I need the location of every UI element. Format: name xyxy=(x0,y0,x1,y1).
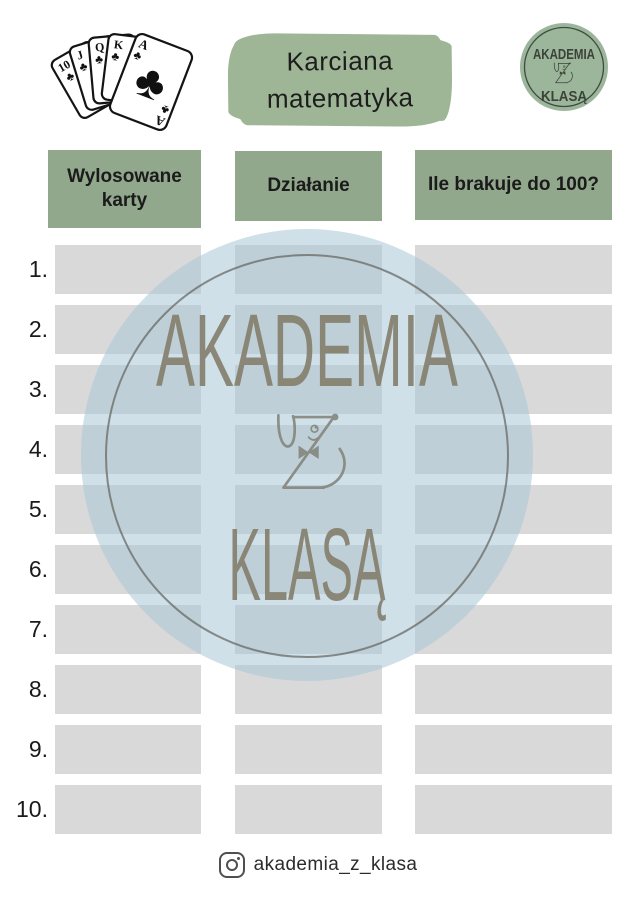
column-header-wylosowane-karty: Wylosowane karty xyxy=(48,150,201,228)
answer-cell-dzialanie[interactable] xyxy=(235,605,382,654)
table-row: 1. xyxy=(0,245,612,294)
answer-cell-karty[interactable] xyxy=(55,725,201,774)
page-title-line-2: matematyka xyxy=(267,79,414,118)
footer: akademia_z_klasa xyxy=(0,852,636,878)
playing-cards-illustration: 10 ♣ J ♣ Q ♣ K ♣ A ♣ ♣ A ♣ xyxy=(48,18,206,140)
table-row: 6. xyxy=(0,545,612,594)
answer-cell-brakuje[interactable] xyxy=(415,785,612,834)
answer-cell-dzialanie[interactable] xyxy=(235,425,382,474)
page-title-line-1: Karciana xyxy=(286,42,393,80)
answer-cell-dzialanie[interactable] xyxy=(235,725,382,774)
answer-cell-brakuje[interactable] xyxy=(415,425,612,474)
row-number: 6. xyxy=(0,545,55,594)
instagram-flash-dot xyxy=(237,857,240,860)
row-number: 5. xyxy=(0,485,55,534)
answer-cell-dzialanie[interactable] xyxy=(235,485,382,534)
answer-cell-dzialanie[interactable] xyxy=(235,305,382,354)
table-row: 10. xyxy=(0,785,612,834)
answer-cell-dzialanie[interactable] xyxy=(235,245,382,294)
answer-cell-dzialanie[interactable] xyxy=(235,665,382,714)
logo-text-akademia: AKADEMIA xyxy=(533,46,595,63)
table-row: 3. xyxy=(0,365,612,414)
answer-cell-karty[interactable] xyxy=(55,245,201,294)
answer-cell-karty[interactable] xyxy=(55,785,201,834)
answer-cell-brakuje[interactable] xyxy=(415,545,612,594)
worksheet-page: 10 ♣ J ♣ Q ♣ K ♣ A ♣ ♣ A ♣ xyxy=(0,0,636,900)
answer-cell-brakuje[interactable] xyxy=(415,725,612,774)
row-number: 3. xyxy=(0,365,55,414)
logo-text-klasa: KLASĄ xyxy=(541,88,587,105)
worksheet-rows: 1. 2. 3. 4. 5. xyxy=(0,245,612,834)
instagram-lens xyxy=(226,859,238,871)
column-header-ile-brakuje: Ile brakuje do 100? xyxy=(415,150,612,220)
row-number: 2. xyxy=(0,305,55,354)
answer-cell-dzialanie[interactable] xyxy=(235,785,382,834)
row-number: 7. xyxy=(0,605,55,654)
table-row: 4. xyxy=(0,425,612,474)
logo-circle xyxy=(520,23,608,111)
answer-cell-karty[interactable] xyxy=(55,665,201,714)
table-row: 8. xyxy=(0,665,612,714)
column-header-dzialanie: Działanie xyxy=(235,151,382,221)
dog-z-icon xyxy=(554,62,572,82)
answer-cell-brakuje[interactable] xyxy=(415,365,612,414)
table-row: 9. xyxy=(0,725,612,774)
title-banner: Karciana matematyka xyxy=(228,37,453,123)
row-number: 4. xyxy=(0,425,55,474)
row-number: 9. xyxy=(0,725,55,774)
row-number: 8. xyxy=(0,665,55,714)
instagram-icon xyxy=(219,852,245,878)
answer-cell-brakuje[interactable] xyxy=(415,245,612,294)
answer-cell-karty[interactable] xyxy=(55,305,201,354)
table-row: 2. xyxy=(0,305,612,354)
logo-ring xyxy=(525,28,604,107)
instagram-handle: akademia_z_klasa xyxy=(254,854,418,876)
answer-cell-brakuje[interactable] xyxy=(415,485,612,534)
row-number: 10. xyxy=(0,785,55,834)
answer-cell-karty[interactable] xyxy=(55,605,201,654)
table-row: 7. xyxy=(0,605,612,654)
answer-cell-brakuje[interactable] xyxy=(415,605,612,654)
answer-cell-brakuje[interactable] xyxy=(415,305,612,354)
answer-cell-dzialanie[interactable] xyxy=(235,545,382,594)
answer-cell-karty[interactable] xyxy=(55,425,201,474)
answer-cell-dzialanie[interactable] xyxy=(235,365,382,414)
row-number: 1. xyxy=(0,245,55,294)
answer-cell-karty[interactable] xyxy=(55,485,201,534)
club-suit-icon: ♣ xyxy=(94,52,103,67)
table-row: 5. xyxy=(0,485,612,534)
answer-cell-karty[interactable] xyxy=(55,545,201,594)
answer-cell-brakuje[interactable] xyxy=(415,665,612,714)
answer-cell-karty[interactable] xyxy=(55,365,201,414)
